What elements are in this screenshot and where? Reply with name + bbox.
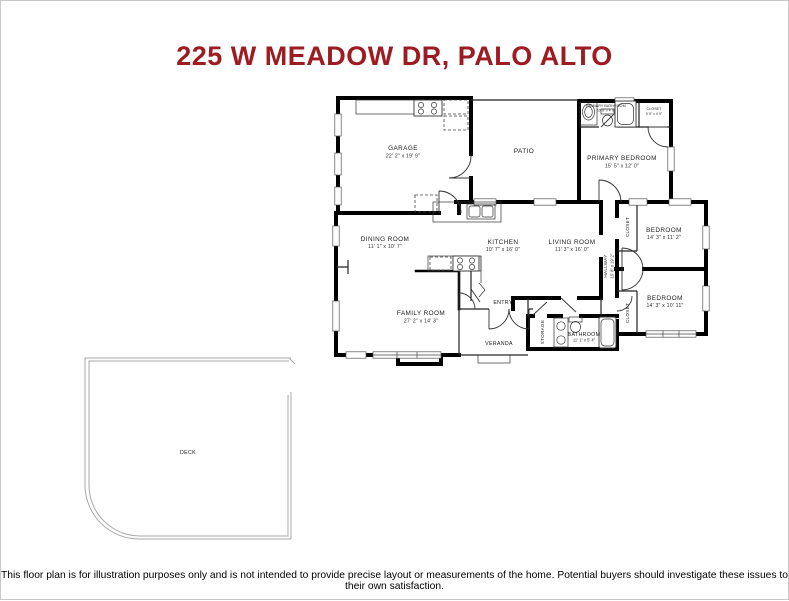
window — [629, 199, 647, 205]
closet-top-label: CLOSET — [625, 217, 630, 237]
porch-step — [478, 355, 510, 363]
door-primary-closet — [648, 127, 668, 147]
entry-label: ENTRY — [493, 300, 513, 306]
peninsula-edge — [479, 256, 485, 297]
door-primary-bath — [601, 114, 614, 127]
bedroom-bottom-dims: 14' 3" x 10' 11" — [646, 303, 683, 309]
window — [703, 286, 709, 311]
door-garage-patio — [449, 156, 471, 178]
bedroom-top-label: BEDROOM — [646, 227, 682, 234]
stove — [453, 256, 479, 271]
closet-bottom-label: CLOSET — [625, 303, 630, 323]
deck-tick — [289, 358, 295, 364]
primary-bathroom-dims: 10' 8" x 4' 9" — [597, 109, 616, 113]
primary-bathroom-label: PRIMARY BATHROOM — [586, 104, 625, 108]
floor-plan-page: { "page": { "title": "225 W MEADOW DR, P… — [0, 0, 789, 600]
window — [335, 114, 341, 136]
door-storage — [533, 302, 547, 315]
dining-room-dims: 11' 1" x 10' 7" — [368, 244, 402, 250]
door-entry-closet — [459, 293, 475, 309]
garage-label: GARAGE — [388, 145, 418, 152]
window — [333, 226, 339, 246]
door-bathroom — [561, 298, 576, 312]
dining-room-label: DINING ROOM — [361, 236, 409, 243]
sink-bowl — [469, 206, 480, 217]
wall-living-bottom — [513, 298, 601, 309]
window — [335, 153, 341, 175]
door-primary-bedroom — [599, 180, 621, 202]
window — [333, 301, 339, 331]
bathroom-dims: 11' 1" x 5' 4" — [573, 338, 596, 343]
window — [335, 187, 341, 205]
sink-oval-inner — [585, 107, 593, 118]
deck-label: DECK — [180, 450, 196, 456]
vanity — [554, 318, 568, 347]
interior-thin-walls — [336, 100, 671, 363]
sink-bowl — [482, 206, 493, 217]
garage-dims: 22' 2" x 19' 9" — [386, 154, 420, 160]
bedroom-bottom-label: BEDROOM — [647, 295, 683, 302]
floor-plan-drawing: GARAGE 22' 2" x 19' 9" PATIO PRIMARY BAT… — [1, 1, 789, 601]
window — [346, 352, 366, 358]
sink-round — [557, 336, 565, 344]
window — [668, 147, 674, 171]
living-room-label: LIVING ROOM — [548, 239, 595, 246]
deck-outline — [85, 358, 295, 539]
hallway-label-group: HALLWAY 15' 8" x 19' 2" — [603, 253, 615, 278]
deck-line-outer — [85, 358, 291, 539]
window — [534, 199, 556, 205]
patio-label: PATIO — [514, 148, 534, 155]
laundry-appliance — [414, 100, 442, 116]
wall-kitchen-divider — [416, 271, 459, 309]
room-labels: GARAGE 22' 2" x 19' 9" PATIO PRIMARY BAT… — [180, 104, 683, 456]
door-entry-left — [489, 309, 509, 329]
door-bedroom-bottom — [622, 269, 643, 290]
family-room-dims: 27' 2" x 14' 3" — [404, 319, 438, 325]
tub — [599, 317, 616, 348]
veranda-label: VERANDA — [485, 341, 513, 347]
disclaimer-text: This floor plan is for illustration purp… — [1, 570, 788, 592]
cabinet-dashed — [444, 116, 468, 130]
bedroom-top-dims: 14' 3" x 11' 2" — [647, 235, 681, 241]
kitchen-dims: 10' 7" x 16' 0" — [486, 247, 520, 253]
sink-round — [557, 322, 565, 330]
primary-bedroom-dims: 15' 5" x 12' 0" — [605, 164, 639, 170]
living-room-dims: 11' 3" x 16' 0" — [555, 247, 589, 253]
deck-line-inner — [89, 361, 289, 536]
cabinet-dashed — [430, 257, 451, 270]
hallway-dims: 15' 8" x 19' 2" — [610, 253, 615, 278]
kitchen-label: KITCHEN — [488, 239, 519, 246]
primary-bedroom-label: PRIMARY BEDROOM — [587, 155, 657, 162]
water-heater-dashed — [415, 195, 437, 212]
primary-closet-label: CLOSET — [647, 107, 663, 111]
toilet-bowl — [571, 322, 581, 333]
window — [669, 199, 691, 205]
hallway-label: HALLWAY — [603, 254, 608, 277]
primary-closet-dims: 5' 8" x 4' 9" — [646, 112, 663, 116]
family-room-label: FAMILY ROOM — [397, 310, 445, 317]
window — [703, 226, 709, 249]
storage-label: STORAGE — [540, 320, 545, 344]
cabinet-dashed — [444, 100, 468, 114]
